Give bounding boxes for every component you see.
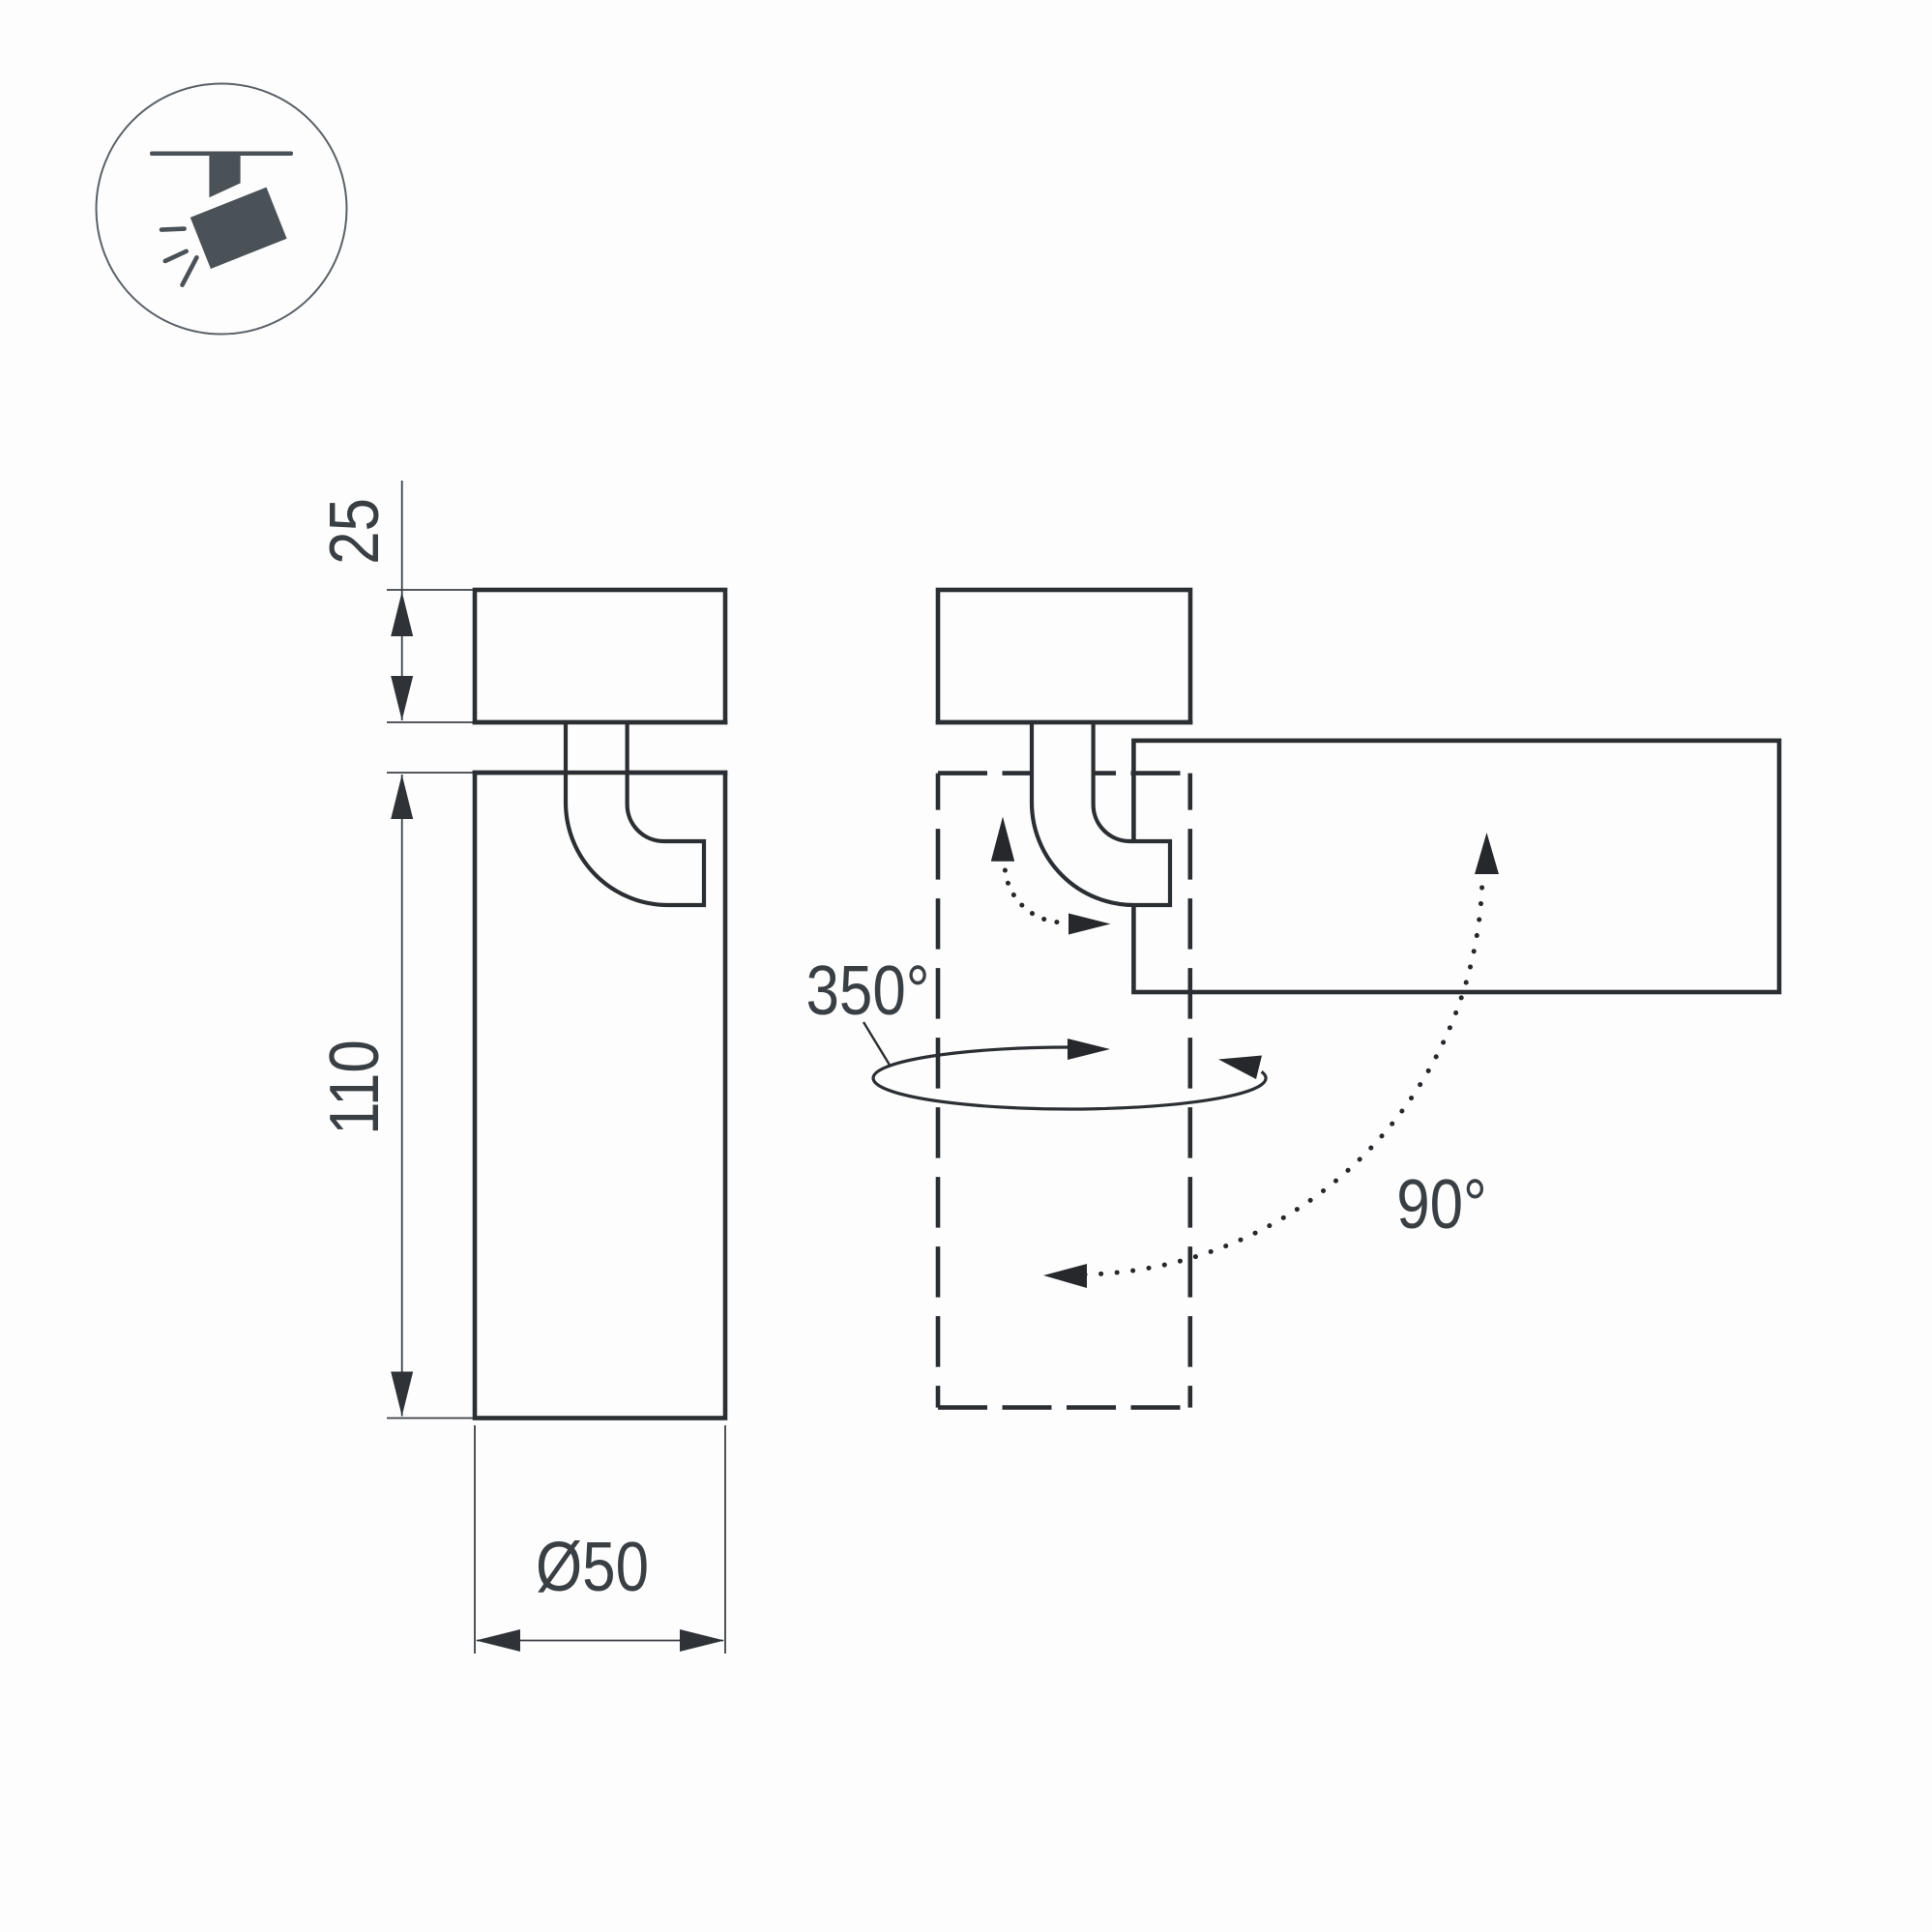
svg-text:90°: 90° <box>1396 1166 1487 1244</box>
svg-text:Ø50: Ø50 <box>536 1529 649 1606</box>
svg-text:350°: 350° <box>805 952 929 1030</box>
svg-text:25: 25 <box>316 498 394 565</box>
svg-text:110: 110 <box>316 1039 394 1135</box>
